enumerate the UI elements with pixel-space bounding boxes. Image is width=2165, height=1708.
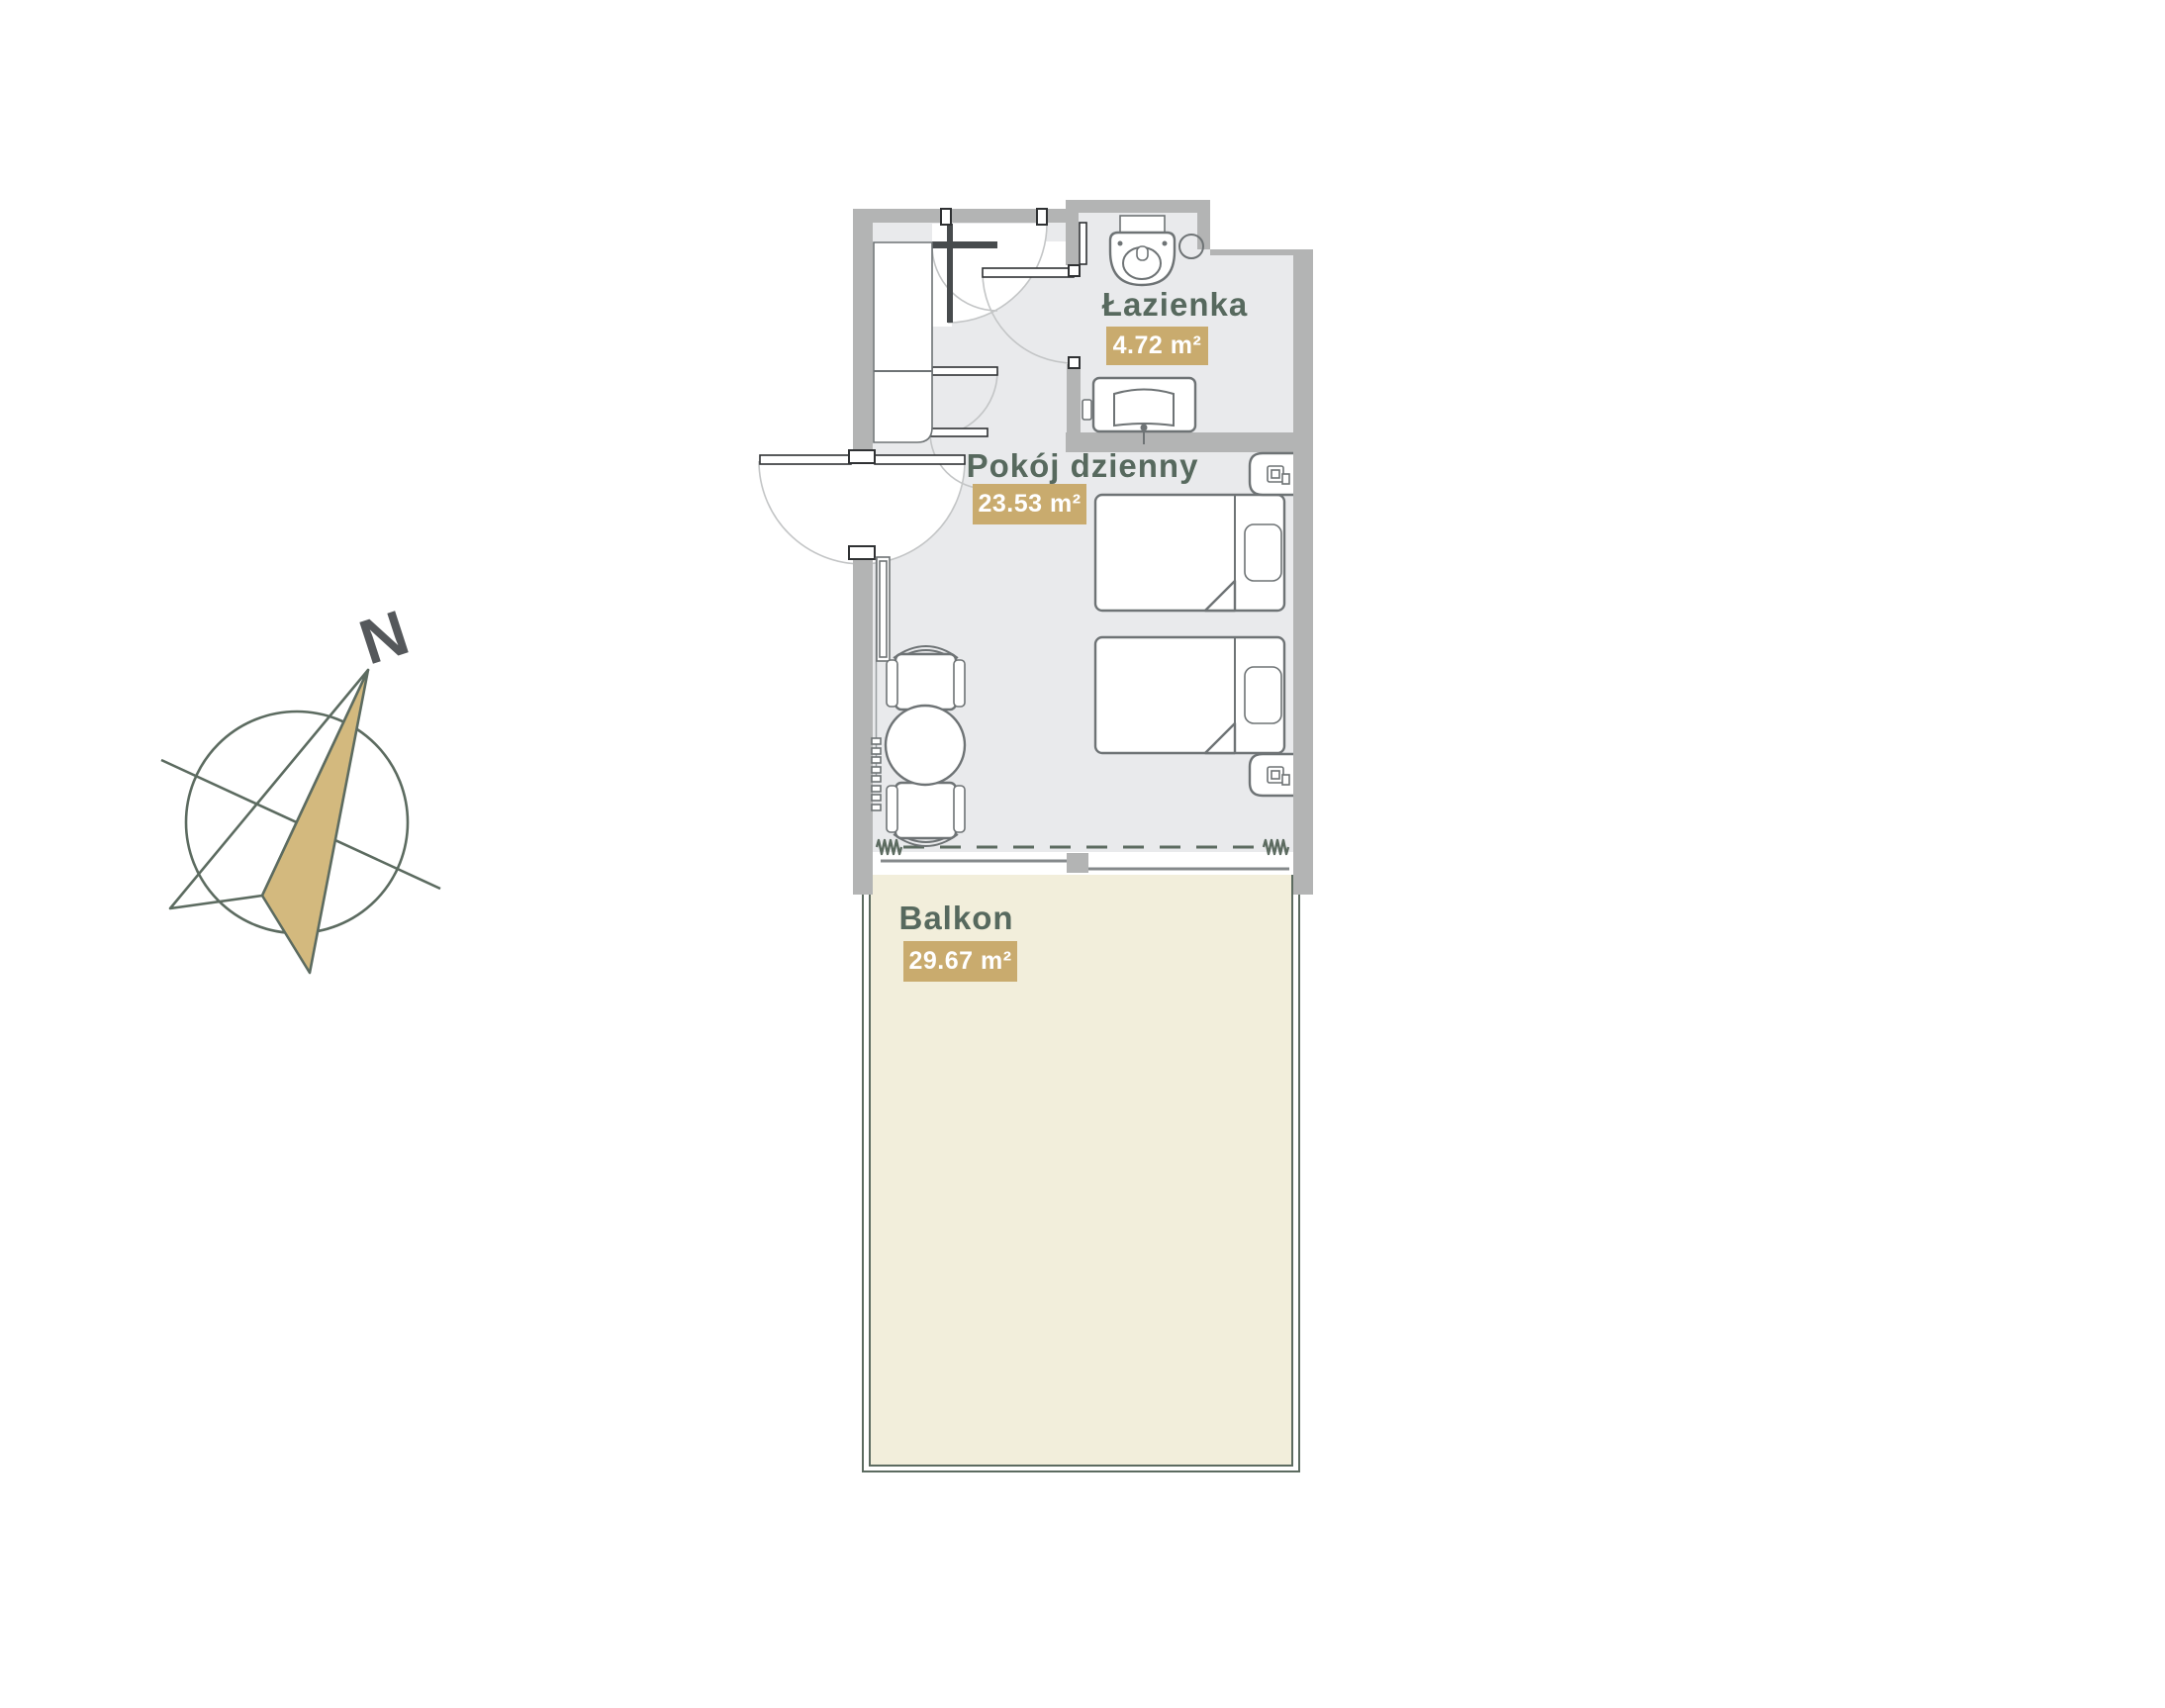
door-post: [849, 450, 875, 463]
bed-icon: [1095, 495, 1284, 611]
door-post: [1037, 209, 1047, 225]
toilet-icon: [1110, 216, 1175, 285]
door-leaf: [930, 428, 988, 436]
door-leaf: [947, 224, 953, 323]
balcony-window: [873, 852, 1295, 875]
door-leaf: [1080, 223, 1086, 264]
door-post: [941, 209, 951, 225]
nightstand-icon: [1250, 453, 1293, 495]
room-area-badge-balkon: 29.67 m²: [903, 941, 1017, 982]
bed-icon: [1095, 637, 1284, 753]
room-name-pokoj-dzienny: Pokój dzienny: [949, 447, 1216, 485]
chair-icon: [887, 783, 965, 846]
door-leaf: [932, 241, 997, 248]
entry-door-leaf: [760, 455, 851, 464]
nightstand-icon: [1250, 754, 1293, 796]
chair-icon: [887, 646, 965, 710]
door-post: [849, 546, 875, 559]
room-name-lazienka: Łazienka: [1083, 286, 1267, 324]
room-area-badge-lazienka: 4.72 m²: [1106, 327, 1208, 365]
wardrobe-icon: [874, 242, 932, 442]
dining-table-icon: [886, 706, 965, 785]
door-post: [1069, 265, 1080, 276]
floor-plan-svg: [0, 0, 2165, 1708]
door-leaf: [932, 367, 997, 375]
bathroom-door-leaf: [983, 268, 1074, 277]
compass-rose-icon: [161, 670, 440, 973]
door-post: [1069, 357, 1080, 368]
room-area-badge-pokoj-dzienny: 23.53 m²: [973, 484, 1086, 524]
room-name-balkon: Balkon: [880, 900, 1033, 937]
floor-plan-canvas: Łazienka 4.72 m² Pokój dzienny 23.53 m² …: [0, 0, 2165, 1708]
